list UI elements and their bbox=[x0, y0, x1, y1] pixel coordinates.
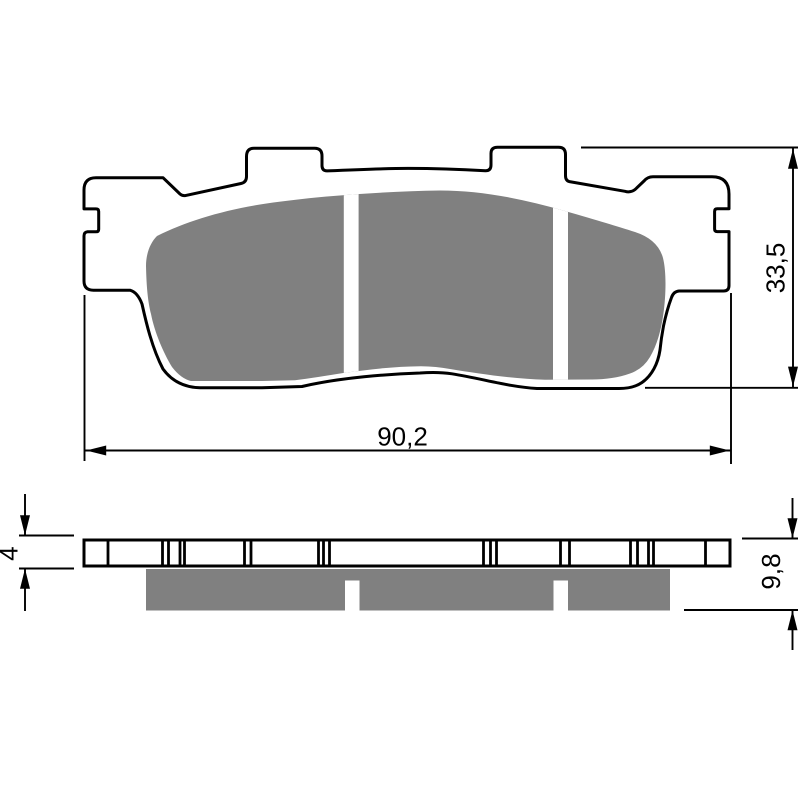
svg-text:90,2: 90,2 bbox=[377, 422, 428, 452]
svg-text:4: 4 bbox=[0, 546, 24, 560]
svg-text:33,5: 33,5 bbox=[761, 243, 791, 294]
svg-text:9,8: 9,8 bbox=[756, 553, 786, 589]
